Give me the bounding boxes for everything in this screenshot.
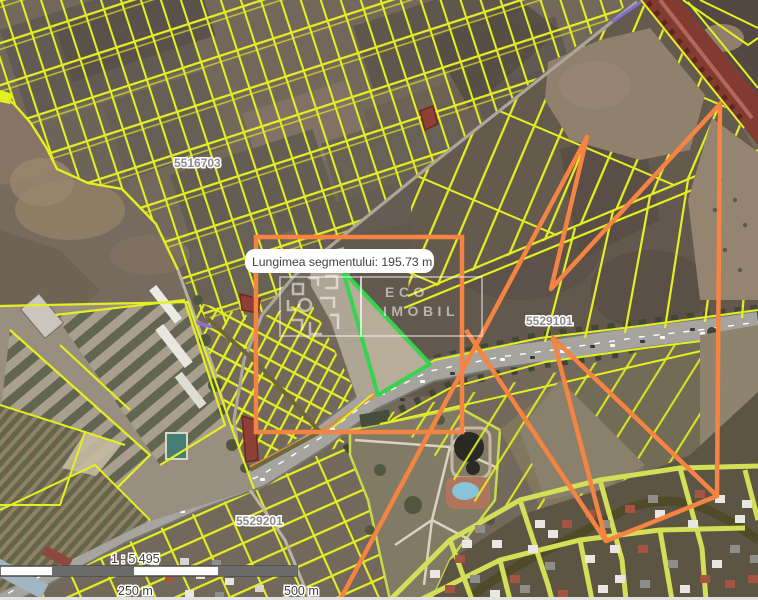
svg-text:1 : 5 495: 1 : 5 495 bbox=[111, 552, 160, 566]
svg-text:5529201: 5529201 bbox=[236, 514, 283, 528]
svg-text:IMOBIL: IMOBIL bbox=[383, 303, 459, 319]
svg-text:250 m: 250 m bbox=[118, 584, 153, 598]
svg-text:ECO: ECO bbox=[385, 284, 429, 300]
svg-text:Lungimea segmentului: 195.73 m: Lungimea segmentului: 195.73 m bbox=[252, 255, 432, 269]
svg-text:5516703: 5516703 bbox=[174, 156, 221, 170]
svg-text:5529101: 5529101 bbox=[526, 314, 573, 328]
svg-text:500 m: 500 m bbox=[284, 584, 319, 598]
